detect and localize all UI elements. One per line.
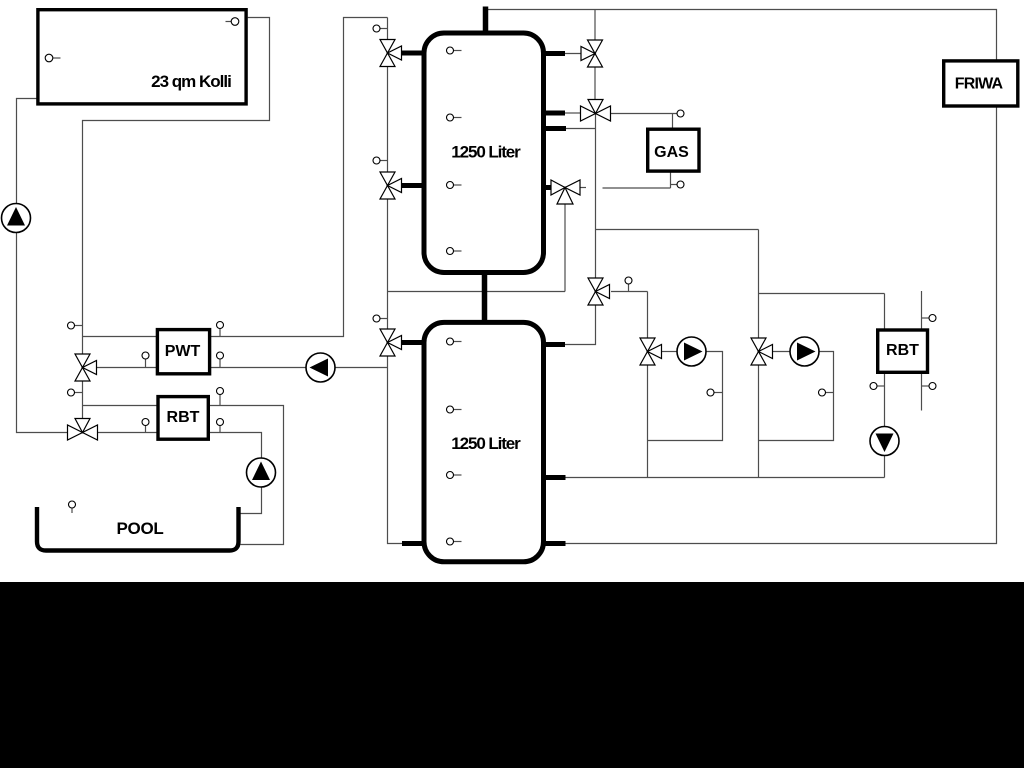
- svg-text:POOL: POOL: [117, 519, 164, 538]
- svg-text:PWT: PWT: [165, 343, 201, 360]
- svg-text:FRIWA: FRIWA: [955, 76, 1004, 93]
- svg-text:1250 Liter: 1250 Liter: [451, 434, 521, 453]
- svg-text:RBT: RBT: [886, 342, 919, 359]
- svg-text:1250 Liter: 1250 Liter: [451, 143, 521, 162]
- svg-text:GAS: GAS: [654, 144, 689, 161]
- svg-text:RBT: RBT: [167, 409, 200, 426]
- svg-text:23 qm Kolli: 23 qm Kolli: [151, 72, 231, 91]
